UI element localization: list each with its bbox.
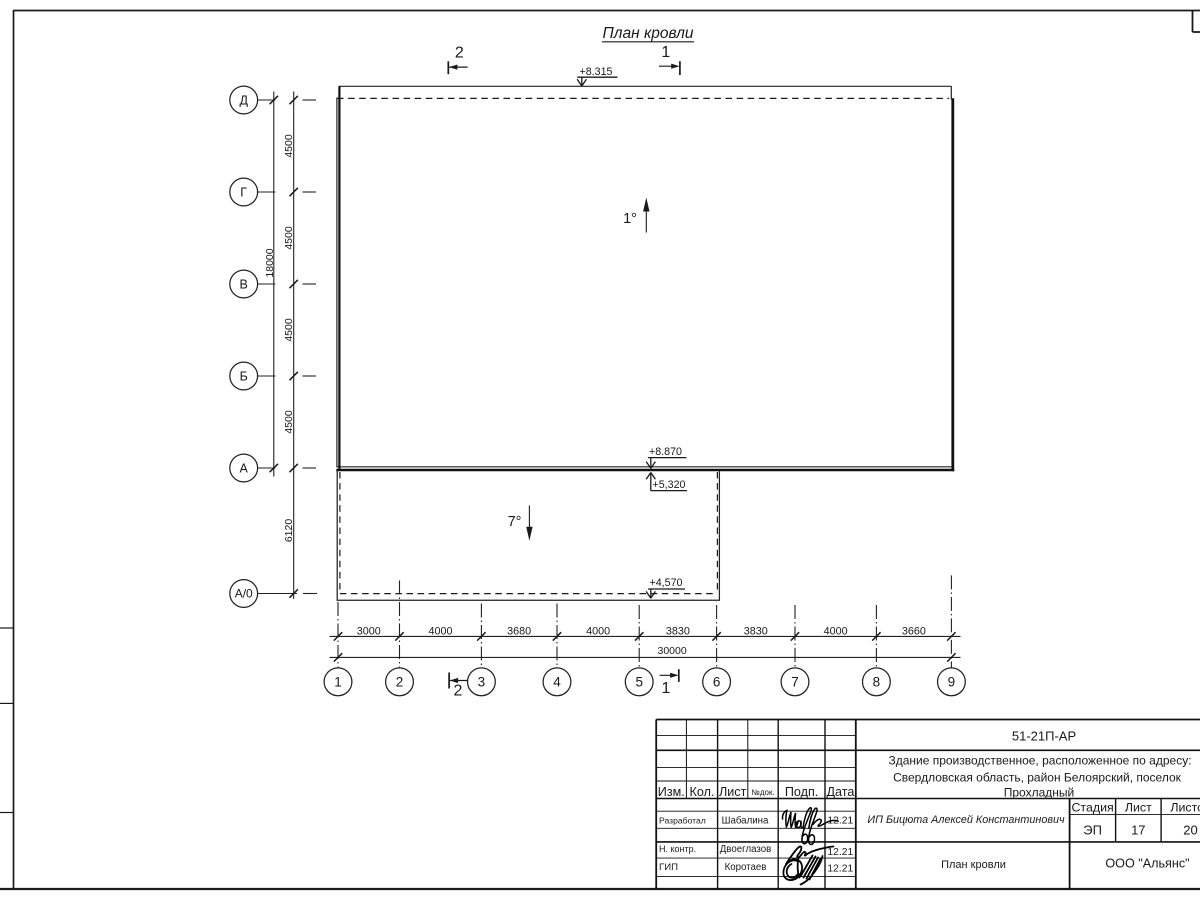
svg-text:2: 2 (454, 683, 463, 700)
svg-text:А/0: А/0 (235, 586, 253, 600)
svg-text:ООО "Альянс": ООО "Альянс" (1105, 857, 1189, 871)
svg-text:А: А (240, 462, 249, 476)
svg-text:Н. контр.: Н. контр. (659, 844, 696, 854)
svg-text:12.21: 12.21 (827, 847, 853, 858)
svg-text:4500: 4500 (283, 318, 295, 342)
svg-text:5: 5 (635, 675, 643, 690)
svg-text:Шабалина: Шабалина (722, 815, 769, 826)
svg-text:+4,570: +4,570 (650, 577, 683, 589)
svg-text:17: 17 (1131, 823, 1145, 838)
svg-text:3830: 3830 (744, 626, 768, 638)
svg-text:Разработал: Разработал (659, 815, 706, 825)
svg-text:4000: 4000 (428, 626, 452, 638)
svg-text:Дата: Дата (826, 785, 854, 799)
svg-text:12.21: 12.21 (827, 863, 853, 874)
svg-text:6120: 6120 (283, 519, 295, 543)
svg-text:51-21П-АР: 51-21П-АР (1012, 729, 1076, 744)
svg-text:Коротаев: Коротаев (725, 862, 767, 873)
svg-text:Кол.: Кол. (690, 785, 715, 799)
svg-text:7: 7 (791, 675, 799, 690)
svg-text:4000: 4000 (586, 626, 610, 638)
svg-text:Листов: Листов (1170, 800, 1200, 814)
svg-text:Лист: Лист (719, 785, 747, 799)
svg-text:В: В (240, 278, 248, 292)
svg-text:План кровли: План кровли (941, 859, 1006, 871)
svg-text:Г: Г (240, 186, 247, 200)
svg-text:Двоеглазов: Двоеглазов (720, 844, 772, 855)
svg-text:1°: 1° (623, 211, 637, 227)
svg-text:30000: 30000 (658, 645, 687, 657)
svg-text:4500: 4500 (283, 410, 295, 434)
svg-text:4: 4 (553, 675, 561, 690)
svg-text:Свердловская область, район Бе: Свердловская область, район Белоярский, … (893, 770, 1182, 784)
svg-text:Здание производственное, распо: Здание производственное, расположенное п… (888, 754, 1191, 768)
svg-text:Лист: Лист (1125, 800, 1152, 814)
svg-text:+8.315: +8.315 (580, 66, 613, 78)
svg-text:2: 2 (455, 45, 464, 62)
svg-text:4500: 4500 (283, 134, 295, 158)
svg-text:ЭП: ЭП (1083, 823, 1102, 838)
svg-text:2: 2 (396, 675, 404, 690)
svg-text:3660: 3660 (902, 626, 926, 638)
svg-text:+8.870: +8.870 (649, 446, 682, 458)
svg-text:3680: 3680 (507, 626, 531, 638)
svg-text:18000: 18000 (264, 248, 276, 277)
svg-text:9: 9 (948, 675, 956, 690)
svg-text:1: 1 (662, 680, 671, 697)
svg-text:8: 8 (873, 675, 881, 690)
svg-text:План кровли: План кровли (603, 25, 694, 42)
svg-text:1: 1 (661, 44, 670, 61)
svg-text:Стадия: Стадия (1071, 800, 1113, 814)
svg-text:7°: 7° (508, 514, 522, 530)
svg-text:3: 3 (478, 675, 486, 690)
svg-text:Д: Д (239, 94, 248, 108)
svg-text:1: 1 (334, 675, 342, 690)
svg-text:№док.: №док. (751, 788, 774, 797)
svg-text:3830: 3830 (666, 626, 690, 638)
svg-text:ИП Бицюта Алексей Константинов: ИП Бицюта Алексей Константинович (867, 814, 1065, 826)
svg-text:4000: 4000 (824, 626, 848, 638)
svg-text:ГИП: ГИП (659, 862, 678, 873)
svg-text:4500: 4500 (283, 226, 295, 250)
svg-text:Прохладный: Прохладный (1004, 786, 1074, 800)
svg-text:+5,320: +5,320 (653, 479, 686, 491)
svg-text:Б: Б (240, 370, 248, 384)
svg-text:Подп.: Подп. (785, 785, 818, 799)
svg-text:Изм.: Изм. (658, 785, 685, 799)
svg-text:6: 6 (713, 675, 721, 690)
svg-text:3000: 3000 (357, 626, 381, 638)
svg-text:20: 20 (1183, 823, 1197, 838)
